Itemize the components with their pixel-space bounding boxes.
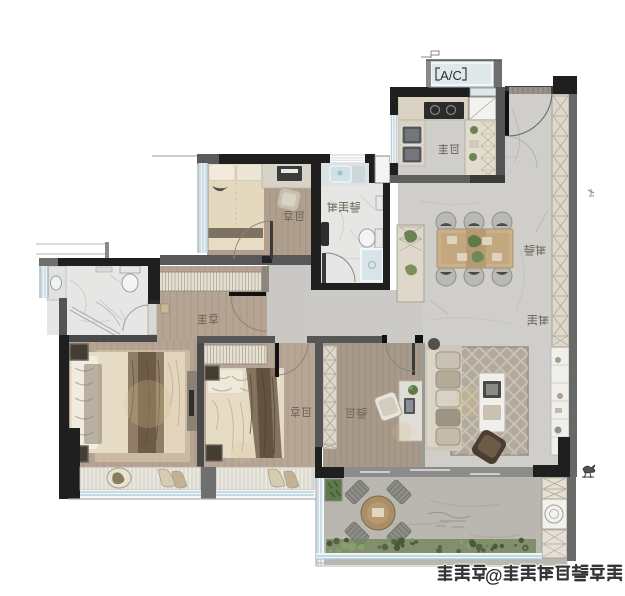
svg-text:A/C: A/C [440,68,462,83]
svg-text:@: @ [485,566,503,586]
